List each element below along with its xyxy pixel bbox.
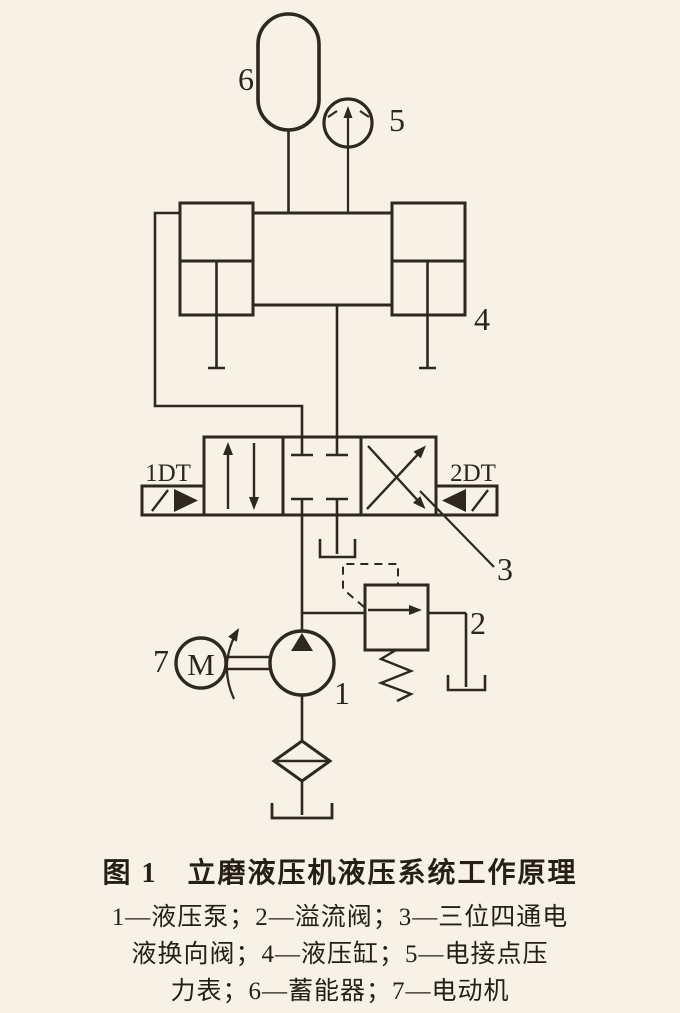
label-relief-valve: 2 xyxy=(470,605,486,641)
label-motor: 7 xyxy=(153,643,169,679)
gauge-contact-tick-left xyxy=(328,111,337,117)
label-solenoid-2dt: 2DT xyxy=(450,460,496,487)
upper-piping xyxy=(155,213,337,437)
relief-spring xyxy=(381,650,411,701)
label-directional-valve: 3 xyxy=(497,551,513,587)
label-solenoid-1dt: 1DT xyxy=(145,460,191,487)
valve-left-down-arrowhead xyxy=(249,497,259,510)
label-cylinder: 4 xyxy=(474,301,490,337)
solenoid-left-slash xyxy=(152,490,168,511)
label-pump: 1 xyxy=(334,675,350,711)
legend-line: 液换向阀；4—液压缸；5—电接点压 xyxy=(0,936,680,973)
lower-piping xyxy=(302,515,365,632)
accumulator-symbol xyxy=(258,14,319,213)
figure-caption: 图 1 立磨液压机液压系统工作原理 1—液压泵；2—溢流阀；3—三位四通电 液换… xyxy=(0,851,680,1010)
label-gauge: 5 xyxy=(389,102,405,138)
directional-valve-symbol xyxy=(142,437,497,515)
pipe-left-branch xyxy=(155,213,302,437)
solenoid-left-triangle xyxy=(174,489,198,512)
pump-symbol xyxy=(270,631,334,695)
valve-right-cross-line-1 xyxy=(367,451,421,509)
solenoid-right-slash xyxy=(472,490,488,511)
legend-line: 1—液压泵；2—溢流阀；3—三位四通电 xyxy=(0,899,680,936)
relief-flow-arrowhead xyxy=(409,605,422,615)
hydraulic-schematic-diagram: 6 5 4 xyxy=(0,0,680,845)
pump-outlet-triangle xyxy=(291,633,313,651)
relief-valve-symbol xyxy=(343,564,485,701)
gauge-needle-arrowhead xyxy=(344,106,353,118)
figure-legend: 1—液压泵；2—溢流阀；3—三位四通电 液换向阀；4—液压缸；5—电接点压 力表… xyxy=(0,899,680,1010)
figure-title: 图 1 立磨液压机液压系统工作原理 xyxy=(0,851,680,891)
relief-valve-body xyxy=(365,585,428,650)
valve-body xyxy=(204,437,436,515)
valve-left-up-arrowhead xyxy=(223,442,233,455)
valve-center-blocked-ports xyxy=(291,437,348,515)
label-motor-letter: M xyxy=(187,647,215,682)
filter-symbol xyxy=(272,695,332,818)
pressure-gauge-symbol xyxy=(324,99,372,213)
accumulator-shell xyxy=(258,14,319,130)
scanned-figure-page: 6 5 4 xyxy=(0,0,680,1013)
rotation-arrowhead xyxy=(228,626,243,642)
label-accumulator: 6 xyxy=(238,61,254,97)
legend-line: 力表；6—蓄能器；7—电动机 xyxy=(0,973,680,1010)
solenoid-right-triangle xyxy=(442,489,466,512)
valve-right-cross-line-2 xyxy=(368,446,421,504)
hydraulic-cylinders xyxy=(180,203,465,368)
